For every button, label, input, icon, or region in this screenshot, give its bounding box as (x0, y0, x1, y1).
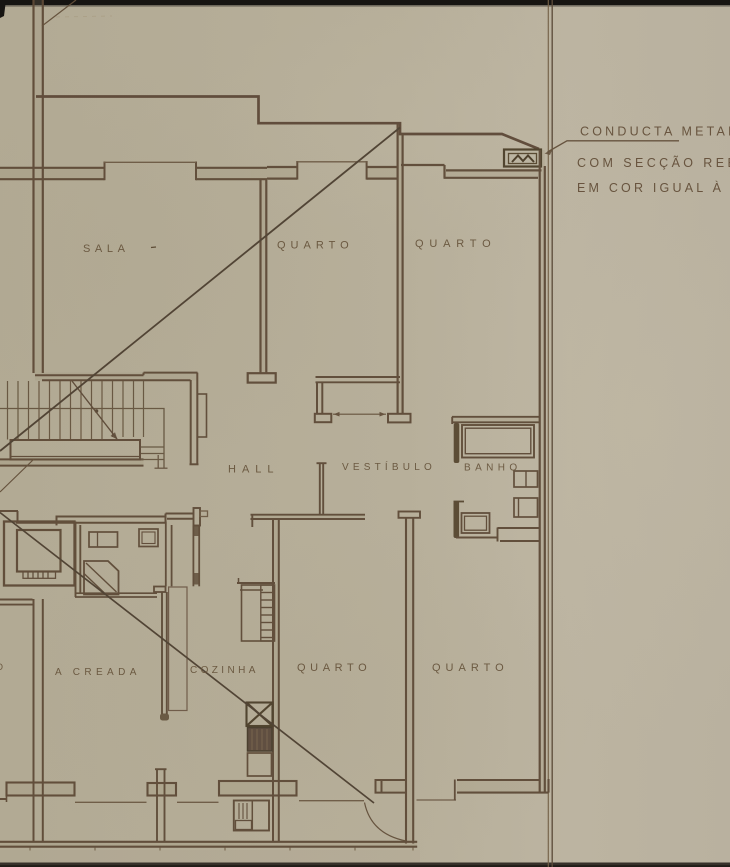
svg-text:CONDUCTA METALI: CONDUCTA METALI (580, 125, 730, 139)
svg-text:A CREADA: A CREADA (55, 667, 141, 678)
svg-text:EM COR IGUAL À D: EM COR IGUAL À D (577, 180, 730, 195)
svg-text:COM SECÇÃO REB: COM SECÇÃO REB (577, 156, 730, 170)
svg-text:QUARTO: QUARTO (277, 240, 354, 252)
svg-text:SALA: SALA (83, 243, 130, 255)
svg-text:VESTÍBULO: VESTÍBULO (342, 460, 436, 473)
svg-text:QUARTO: QUARTO (297, 662, 371, 674)
svg-text:COZINHA: COZINHA (190, 665, 259, 676)
svg-text:O: O (0, 662, 5, 672)
svg-text:BANHO: BANHO (464, 463, 522, 474)
svg-text:QUARTO: QUARTO (432, 662, 509, 674)
svg-text:HALL: HALL (228, 464, 280, 476)
svg-text:QUARTO: QUARTO (415, 238, 496, 250)
